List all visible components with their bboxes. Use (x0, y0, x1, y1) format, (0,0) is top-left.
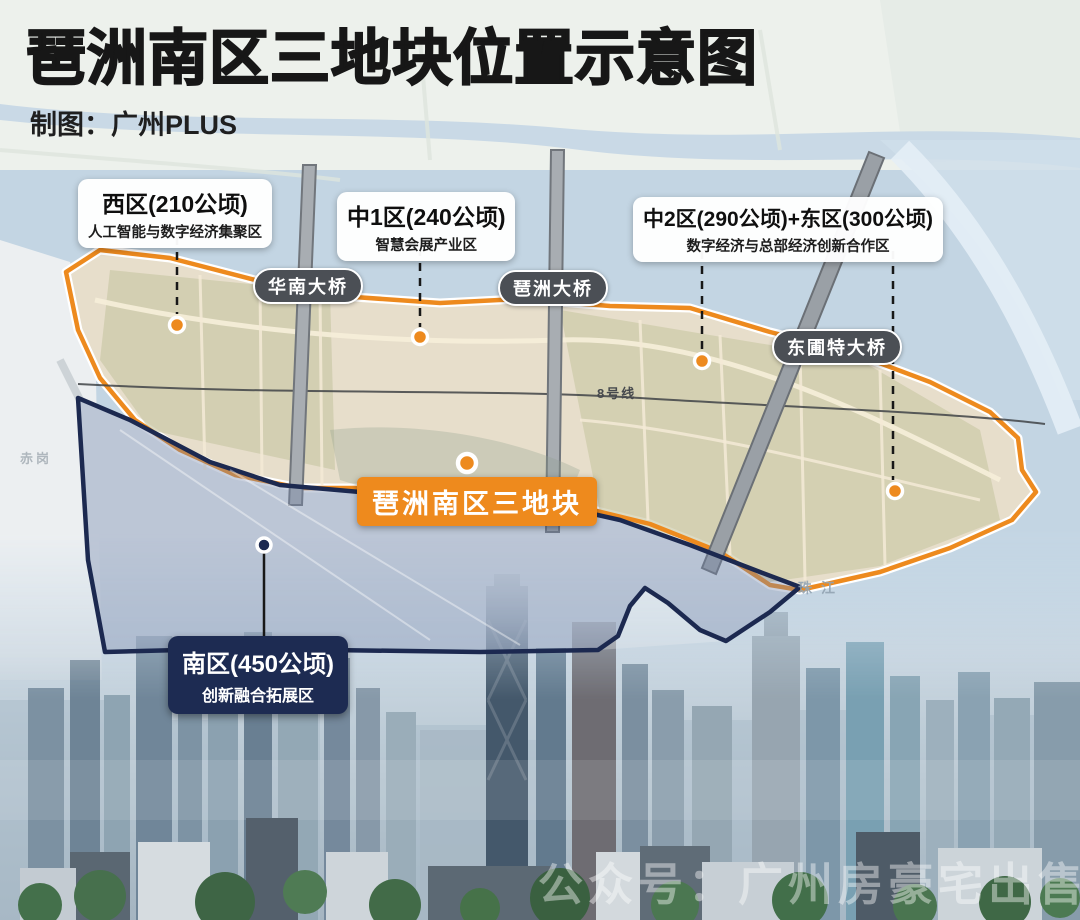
zone-central1-name: 中1区(240公顷) (347, 198, 505, 232)
zone-marker-south (257, 538, 271, 552)
zone-south-desc: 创新融合拓展区 (182, 682, 334, 706)
zone-central2-east-name: 中2区(290公顷)+东区(300公顷) (643, 203, 933, 233)
zone-central2-east-desc: 数字经济与总部经济创新合作区 (643, 235, 933, 256)
zone-west-name: 西区(210公顷) (88, 185, 262, 219)
zone-marker-central2 (695, 354, 710, 369)
zone-label-central1: 中1区(240公顷) 智慧会展产业区 (337, 192, 515, 261)
bridge-label-huanan: 华南大桥 (253, 268, 363, 304)
zone-west-desc: 人工智能与数字经济集聚区 (88, 221, 262, 242)
zone-label-south: 南区(450公顷) 创新融合拓展区 (168, 636, 348, 714)
center-area-tag: 琶洲南区三地块 (357, 477, 597, 526)
bridge-label-pazhou: 琶洲大桥 (498, 270, 608, 306)
zone-label-west: 西区(210公顷) 人工智能与数字经济集聚区 (78, 179, 272, 248)
zone-label-central2-east: 中2区(290公顷)+东区(300公顷) 数字经济与总部经济创新合作区 (633, 197, 943, 262)
zone-central1-desc: 智慧会展产业区 (347, 234, 505, 255)
metro-line-label: 8号线 (597, 383, 636, 402)
credit-line: 制图：广州PLUS (30, 103, 237, 142)
zone-south-name: 南区(450公顷) (182, 644, 334, 679)
zone-marker-east (888, 484, 903, 499)
river-label: 珠江 (798, 578, 844, 598)
page-title: 琶洲南区三地块位置示意图 (26, 10, 758, 97)
zone-marker-west (170, 318, 185, 333)
infographic: 琶洲南区三地块位置示意图 制图：广州PLUS 西区(210公顷) 人工智能与数字… (0, 0, 1080, 920)
bridge-label-dongpu: 东圃特大桥 (772, 329, 902, 365)
watermark: 公众号：广州房豪宅出售 (538, 848, 1080, 913)
zone-marker-central1 (413, 330, 428, 345)
district-label: 赤岗 (20, 448, 52, 467)
center-marker (458, 454, 476, 472)
